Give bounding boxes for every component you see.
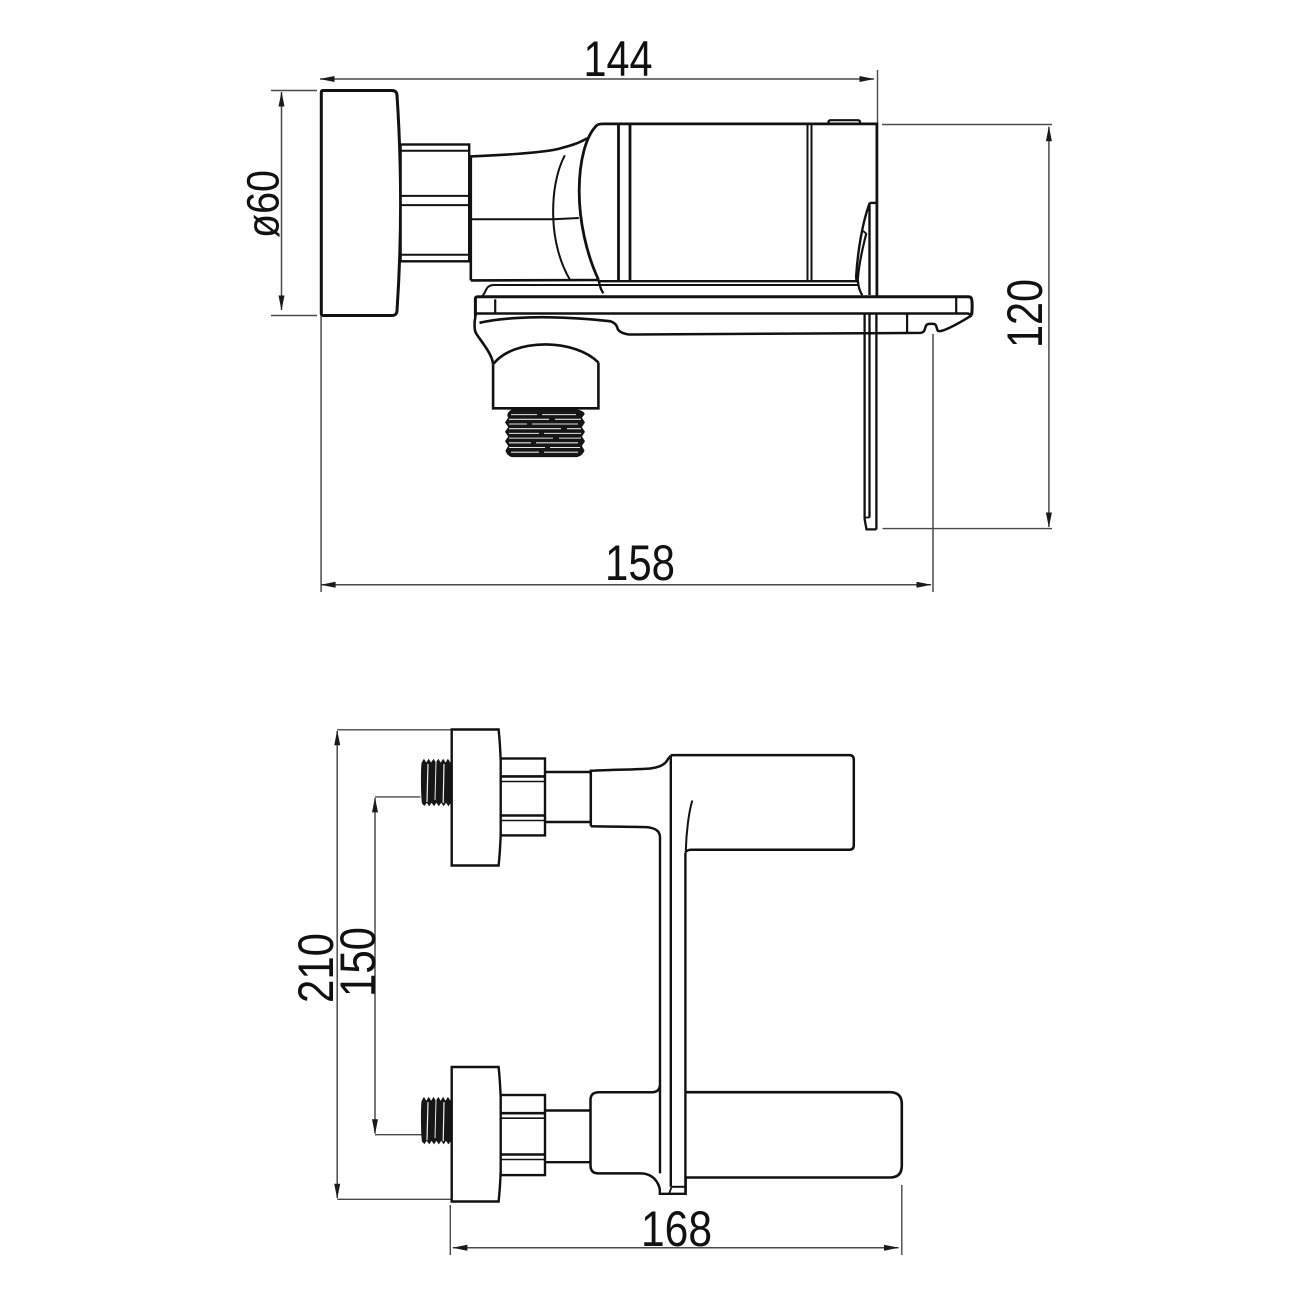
svg-text:ø60: ø60: [238, 170, 289, 238]
svg-text:168: 168: [641, 1201, 712, 1257]
svg-text:150: 150: [330, 927, 386, 997]
svg-text:158: 158: [605, 535, 675, 591]
svg-text:120: 120: [997, 279, 1053, 348]
svg-text:144: 144: [584, 31, 653, 87]
